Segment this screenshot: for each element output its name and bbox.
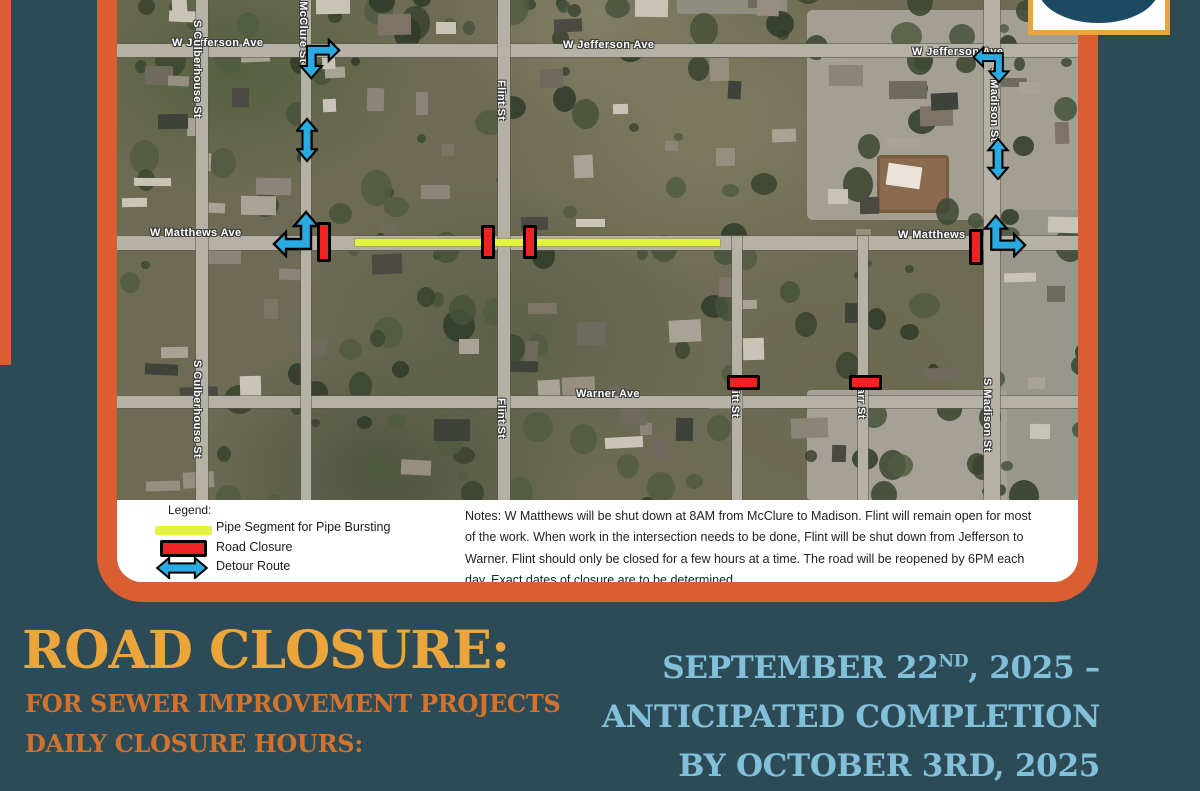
legend-notes-band: Legend: Pipe Segment for Pipe Bursting R… [117,500,1078,582]
sewer-projects-subtitle: FOR SEWER IMPROVEMENT PROJECTS [25,689,560,718]
road-closure-marker-flint-east [523,225,537,259]
logo-circle [1038,0,1159,23]
closure-notes-text: Notes: W Matthews will be shut down at 8… [465,506,1033,582]
street-label: S Culberhouse St [191,20,203,118]
legend-item-label: Road Closure [216,540,292,554]
map-card-frame: W Jefferson Ave W Jefferson Ave W Jeffer… [97,0,1098,602]
road-parr-st [858,236,868,500]
map-card: W Jefferson Ave W Jefferson Ave W Jeffer… [117,0,1078,582]
street-label: Flint St [495,398,507,438]
street-label: Flint St [495,80,507,120]
road-closure-marker-flint-west [481,225,495,259]
detour-arrow-matthews-mcclure [272,210,320,258]
road-closure-swatch [160,540,207,557]
pipe-segment-line [355,239,720,246]
street-label: W Jefferson Ave [172,37,263,49]
detour-route-swatch [152,557,212,579]
legend-title: Legend: [168,503,211,517]
street-label: W Jefferson Ave [563,39,654,51]
detour-arrow-mcclure-vertical [296,116,318,164]
legend-item-label: Pipe Segment for Pipe Bursting [216,520,390,534]
road-closure-marker-madison-matthews [969,229,983,265]
legend-item-label: Detour Route [216,559,290,573]
road-closure-title: ROAD CLOSURE: [22,620,509,681]
date-line-2: ANTICIPATED COMPLETION [602,693,1100,742]
road-closure-marker-witt-warner [727,375,760,390]
date-line-1: SEPTEMBER 22ND, 2025 – [602,644,1100,693]
detour-arrow-jefferson-mcclure [298,38,342,80]
detour-arrow-jefferson-madison [968,46,1014,84]
closure-date-range: SEPTEMBER 22ND, 2025 – ANTICIPATED COMPL… [602,644,1100,791]
pipe-segment-swatch [155,526,212,535]
date-line-3: BY OCTOBER 3RD, 2025 [602,742,1100,791]
detour-arrow-madison-vertical [986,138,1010,180]
street-label: Warner Ave [576,388,640,400]
street-label: S Culberhouse St [191,360,203,458]
logo-box [1028,0,1170,35]
ordinal-superscript: ND [939,652,969,672]
road-witt-st [732,236,742,500]
daily-closure-hours-label: DAILY CLOSURE HOURS: [25,729,363,758]
left-edge-accent-bar [0,0,11,365]
street-label: W Matthews [898,229,966,241]
satellite-map: W Jefferson Ave W Jefferson Ave W Jeffer… [117,0,1078,500]
road-closure-marker-parr-warner [849,375,882,390]
street-label: W Matthews Ave [150,227,242,239]
street-label: S Madison St [981,378,993,452]
church-roof-detail [886,163,923,190]
detour-arrow-matthews-madison [983,214,1027,258]
